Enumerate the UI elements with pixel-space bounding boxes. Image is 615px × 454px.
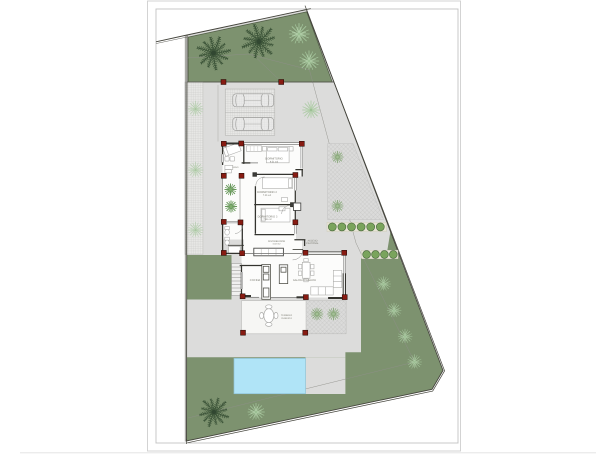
svg-text:7.65 m2: 7.65 m2 bbox=[263, 218, 272, 221]
svg-text:BANO: BANO bbox=[232, 166, 238, 169]
svg-text:COCINA: COCINA bbox=[250, 279, 261, 282]
svg-text:TERRAZA: TERRAZA bbox=[281, 314, 293, 317]
svg-text:DORMITORIO 2: DORMITORIO 2 bbox=[257, 191, 277, 194]
svg-text:CUBIERTA: CUBIERTA bbox=[281, 317, 292, 320]
svg-text:7.30 m2: 7.30 m2 bbox=[263, 194, 272, 197]
svg-text:9.51 m2: 9.51 m2 bbox=[270, 161, 279, 164]
svg-text:DORMITORIO 3: DORMITORIO 3 bbox=[258, 215, 278, 218]
svg-text:SALON-COMEDOR: SALON-COMEDOR bbox=[293, 279, 316, 282]
svg-text:4.02 m2: 4.02 m2 bbox=[273, 242, 282, 245]
svg-text:PEATONAL: PEATONAL bbox=[306, 242, 319, 245]
svg-text:DORMITORIO: DORMITORIO bbox=[265, 158, 282, 161]
svg-text:DISTRIBUIDOR: DISTRIBUIDOR bbox=[268, 240, 285, 243]
